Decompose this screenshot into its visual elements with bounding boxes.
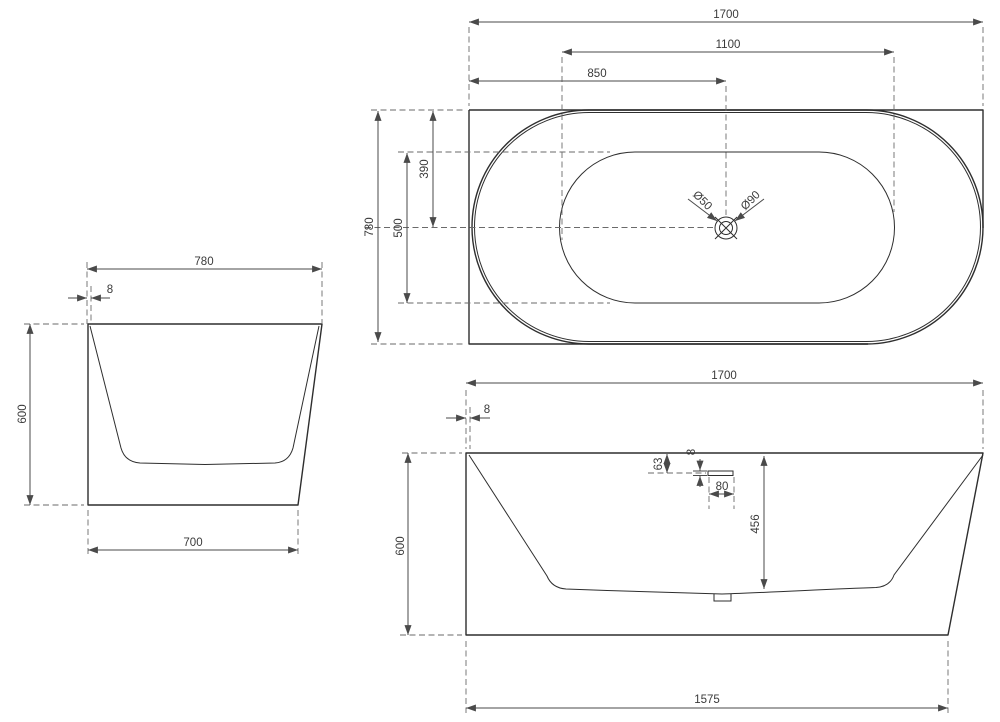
plan-dim-drain-from-left: 850 (469, 68, 726, 81)
drain-label-small: Ø50 (690, 189, 714, 213)
plan-dim-drain-from-back: 390 (419, 111, 433, 227)
drain-cross (715, 217, 737, 239)
plan-view: Ø50 Ø90 1700 1100 850 780 (364, 9, 983, 344)
front-dim-inner-depth: 456 (750, 456, 764, 589)
dim-label: 1100 (716, 39, 741, 51)
dim-label: 600 (395, 536, 407, 555)
dim-label: 780 (194, 256, 213, 268)
front-drain (714, 594, 731, 601)
side-dim-top-width: 780 (87, 256, 322, 269)
dim-label: 850 (587, 68, 606, 80)
front-dim-overflow-width: 80 (709, 481, 734, 494)
dim-label: 780 (364, 217, 376, 236)
dim-label: 600 (17, 404, 29, 423)
plan-dim-overall-width: 780 (364, 111, 378, 342)
plan-dim-inner-length: 1100 (562, 39, 894, 52)
dim-label: 700 (183, 537, 202, 549)
drawing-sheet: 780 8 600 700 Ø50 (0, 0, 1000, 722)
dim-label: 8 (484, 404, 490, 416)
plan-dim-inner-width: 500 (393, 153, 407, 303)
plan-dim-overall-length: 1700 (469, 9, 983, 22)
dim-label: 8 (107, 284, 113, 296)
front-view: 1700 8 600 456 63 8 80 (395, 370, 983, 713)
dim-label: 1575 (694, 694, 720, 706)
side-inner-basin-profile (90, 326, 319, 465)
front-dim-height: 600 (395, 453, 408, 635)
front-dim-wall-thickness: 8 (446, 404, 490, 418)
front-dim-overflow-from-top: 63 (653, 454, 667, 473)
dim-label: 456 (750, 514, 762, 533)
dim-label: 500 (393, 218, 405, 237)
dim-label: 390 (419, 159, 431, 178)
front-dim-overall-length: 1700 (466, 370, 983, 383)
dim-label: 1700 (711, 370, 737, 382)
side-view: 780 8 600 700 (17, 256, 322, 556)
dim-label: 80 (716, 481, 729, 493)
dim-label: 63 (653, 458, 665, 471)
front-dim-overflow-height: 8 (686, 449, 707, 487)
side-dim-base-width: 700 (88, 537, 298, 550)
dim-label: 1700 (713, 9, 739, 21)
dim-label: 8 (686, 449, 698, 455)
overflow-slot (708, 471, 733, 476)
technical-drawing: 780 8 600 700 Ø50 (0, 0, 1000, 722)
side-dim-height: 600 (17, 324, 30, 505)
drain-label-large: Ø90 (739, 189, 763, 213)
side-outer-profile (88, 324, 322, 505)
front-dim-base-length: 1575 (466, 694, 948, 708)
